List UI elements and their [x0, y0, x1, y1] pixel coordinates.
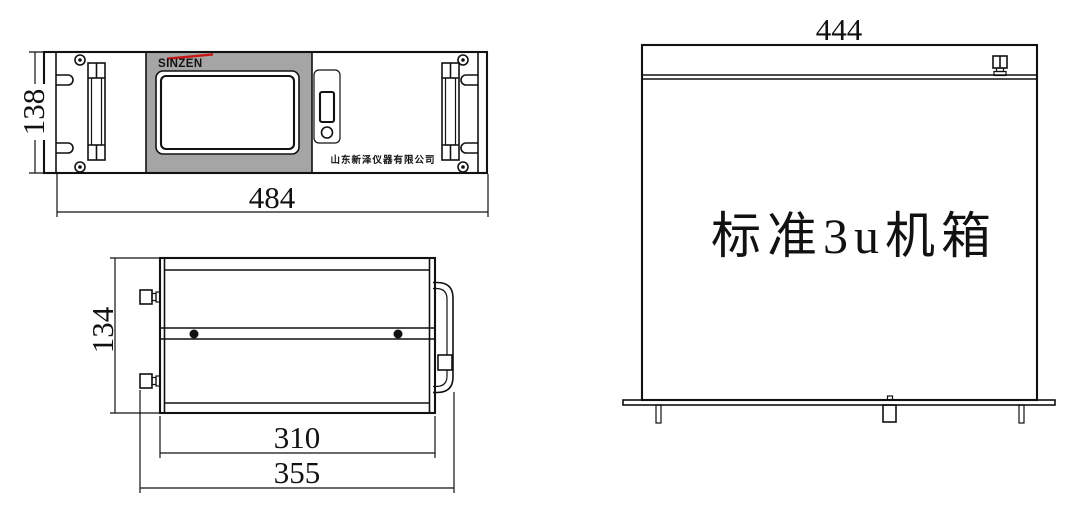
tube-fitting-icon: [993, 56, 1007, 76]
chassis-label: 标准3u机箱: [711, 208, 997, 264]
foot-pin: [656, 405, 661, 423]
drawing-svg: SINZEN 山东新泽仪器有限公司 484 138: [0, 0, 1080, 514]
brand-logo-text: SINZEN: [158, 58, 203, 70]
screw-icon: [458, 162, 468, 172]
front-right-handle: [442, 63, 459, 160]
side-height-dimension: 134: [85, 258, 160, 413]
dimension-value: 444: [816, 12, 863, 47]
handle-latch: [438, 355, 452, 370]
base-plate: [623, 400, 1055, 405]
rivet-dot-icon: [190, 330, 199, 339]
left-top-slot: [56, 75, 73, 85]
left-bottom-slot: [56, 143, 73, 153]
side-inner-lines: [165, 270, 430, 403]
front-height-dimension: 138: [16, 52, 51, 173]
side-panel-edges: [165, 258, 430, 413]
usb-port-icon: [320, 92, 334, 122]
top-view: 标准3u机箱 444: [623, 12, 1055, 423]
side-body-outline: [160, 258, 435, 413]
bottom-connector-box: [883, 405, 896, 422]
right-bottom-slot: [461, 143, 478, 153]
rivet-dot-icon: [394, 330, 403, 339]
right-top-slot: [461, 75, 478, 85]
top-width-dimension: 444: [816, 12, 863, 47]
engineering-drawing-3u-chassis: SINZEN 山东新泽仪器有限公司 484 138: [0, 0, 1080, 514]
side-body-width-dimension: 310: [160, 416, 435, 458]
tube-fitting-icon: [140, 290, 160, 304]
front-left-handle: [88, 63, 105, 160]
display-screen-bezel: [156, 71, 299, 154]
dimension-value: 138: [16, 89, 51, 136]
lid-edge-lines: [642, 75, 1037, 79]
company-name: 山东新泽仪器有限公司: [330, 154, 435, 166]
dimension-value: 134: [85, 306, 120, 353]
sub-panel-outline: [314, 70, 340, 143]
screw-icon: [75, 162, 85, 172]
dimension-value: 484: [249, 180, 296, 215]
foot-pin: [1019, 405, 1024, 423]
dimension-value: 355: [274, 455, 321, 490]
usb-power-panel: [314, 70, 340, 143]
front-width-dimension: 484: [57, 174, 488, 217]
screw-icon: [75, 55, 85, 65]
side-view: 134 310 355: [85, 258, 454, 493]
front-view: SINZEN 山东新泽仪器有限公司 484 138: [16, 52, 488, 217]
power-button-icon: [322, 127, 333, 138]
tube-fitting-icon: [140, 374, 160, 388]
dimension-value: 310: [274, 420, 321, 455]
